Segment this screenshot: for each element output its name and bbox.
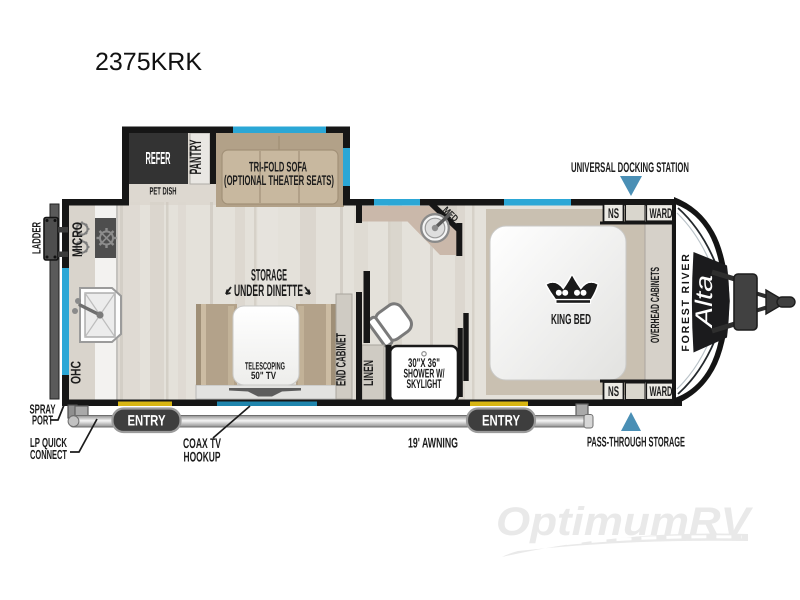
- svg-text:OVERHEAD CABINETS: OVERHEAD CABINETS: [648, 267, 662, 343]
- svg-text:WARD: WARD: [650, 205, 673, 221]
- svg-text:PET DISH: PET DISH: [150, 186, 177, 198]
- svg-text:ENTRY: ENTRY: [128, 413, 166, 430]
- svg-text:NS: NS: [608, 205, 619, 221]
- svg-text:ENTRY: ENTRY: [482, 413, 520, 430]
- svg-text:LINEN: LINEN: [361, 360, 376, 386]
- svg-text:2375KRK: 2375KRK: [95, 48, 202, 76]
- svg-text:Alta: Alta: [691, 275, 718, 330]
- svg-text:MICRO: MICRO: [69, 222, 85, 257]
- svg-text:OHC: OHC: [68, 361, 84, 384]
- svg-text:CONNECT: CONNECT: [30, 447, 67, 462]
- svg-text:PORT: PORT: [32, 413, 53, 428]
- svg-text:19' AWNING: 19' AWNING: [408, 435, 458, 451]
- svg-text:SKYLIGHT: SKYLIGHT: [407, 377, 442, 391]
- svg-text:KING BED: KING BED: [551, 312, 591, 328]
- svg-text:PANTRY: PANTRY: [187, 140, 205, 175]
- svg-text:(OPTIONAL THEATER SEATS): (OPTIONAL THEATER SEATS): [224, 172, 334, 188]
- svg-text:50" TV: 50" TV: [251, 370, 276, 382]
- svg-text:UNIVERSAL DOCKING STATION: UNIVERSAL DOCKING STATION: [571, 159, 689, 175]
- svg-text:LADDER: LADDER: [30, 222, 44, 254]
- svg-text:REFER: REFER: [146, 148, 171, 168]
- svg-text:HOOKUP: HOOKUP: [184, 449, 221, 465]
- svg-text:END CABINET: END CABINET: [334, 333, 349, 386]
- svg-text:UNDER DINETTE: UNDER DINETTE: [234, 282, 303, 300]
- svg-text:PASS-THROUGH STORAGE: PASS-THROUGH STORAGE: [587, 434, 685, 450]
- svg-text:NS: NS: [608, 383, 619, 399]
- svg-text:WARD: WARD: [650, 383, 673, 399]
